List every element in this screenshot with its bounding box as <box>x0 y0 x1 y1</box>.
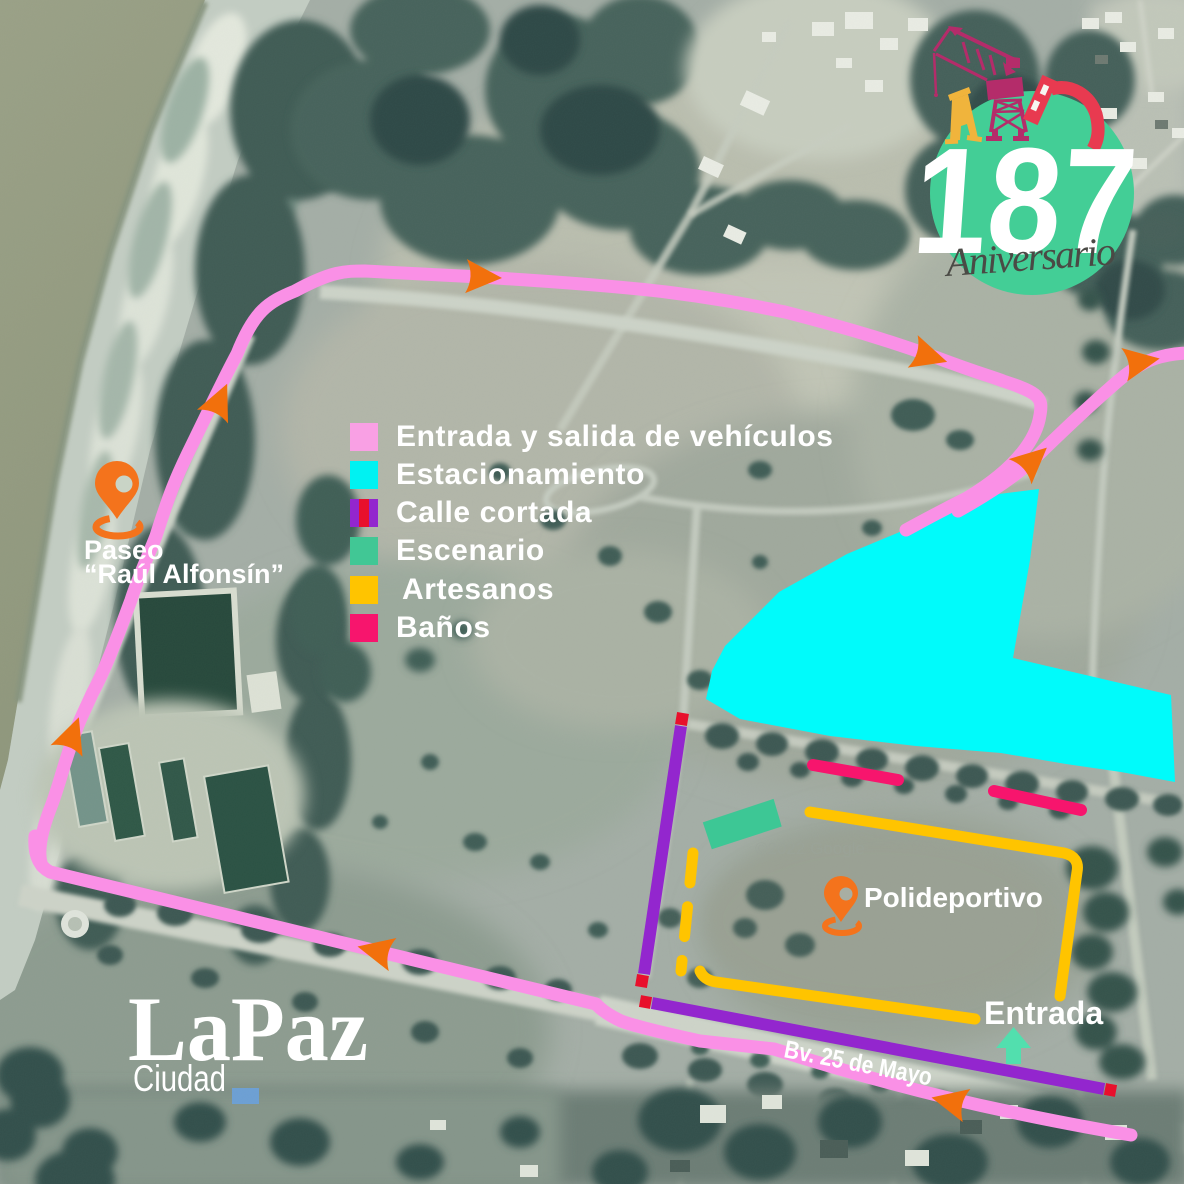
svg-text:Escenario: Escenario <box>396 534 545 567</box>
svg-text:©2022 Google: ©2022 Google <box>755 839 865 858</box>
svg-text:Entrada y salida de vehículos: Entrada y salida de vehículos <box>396 420 834 453</box>
svg-text:Ciudad: Ciudad <box>133 1058 226 1099</box>
svg-text:Entrada: Entrada <box>984 995 1103 1031</box>
svg-text:Polideportivo: Polideportivo <box>864 882 1043 913</box>
svg-text:Artesanos: Artesanos <box>402 573 554 606</box>
svg-text:“Raúl Alfonsín”: “Raúl Alfonsín” <box>84 559 284 589</box>
svg-text:Calle cortada: Calle cortada <box>396 496 592 529</box>
svg-text:Estacionamiento: Estacionamiento <box>396 458 645 491</box>
svg-text:Baños: Baños <box>396 611 491 644</box>
